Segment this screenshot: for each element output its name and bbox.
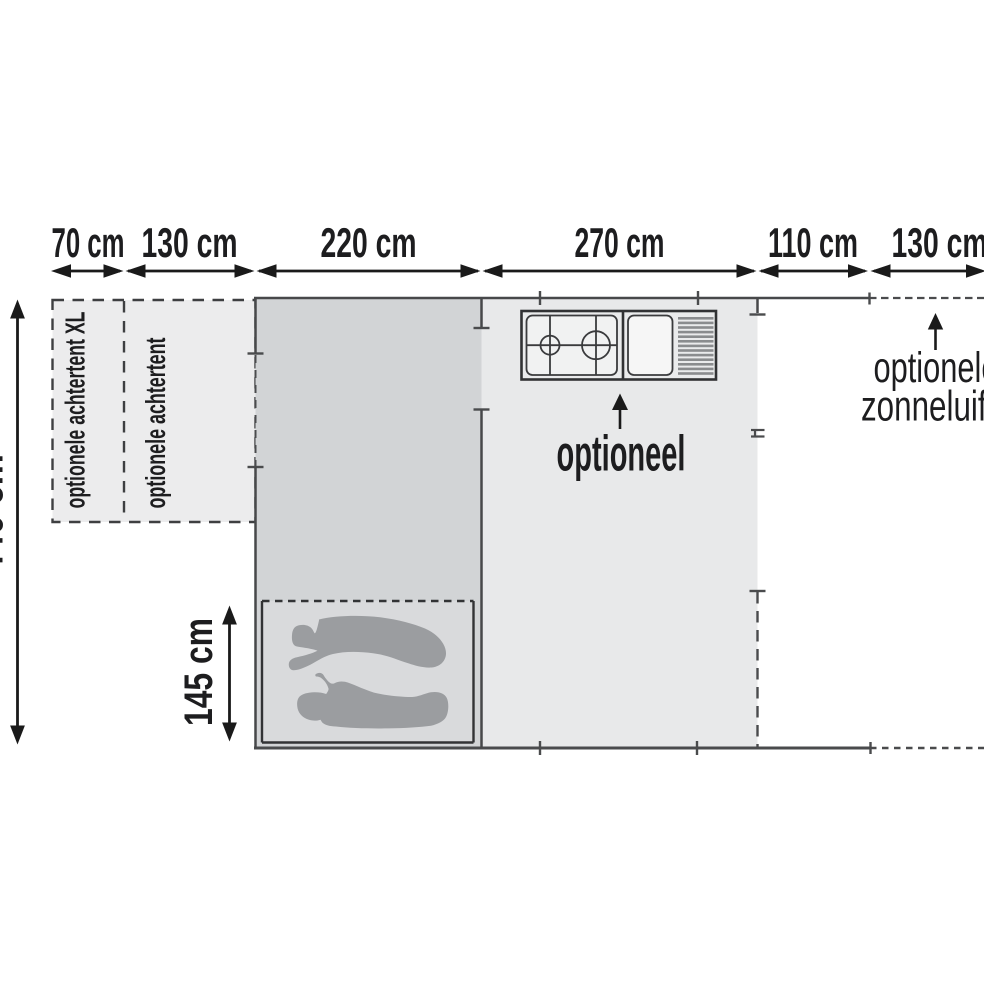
- svg-text:130 cm: 130 cm: [892, 219, 984, 266]
- svg-text:220 cm: 220 cm: [321, 219, 417, 266]
- svg-text:130 cm: 130 cm: [142, 219, 238, 266]
- svg-text:270 cm: 270 cm: [575, 219, 665, 266]
- svg-text:70 cm: 70 cm: [52, 219, 125, 266]
- svg-text:zonneluifel: zonneluifel: [861, 383, 984, 431]
- svg-text:440 cm: 440 cm: [0, 454, 12, 574]
- svg-text:optionele achtertent: optionele achtertent: [140, 338, 171, 509]
- svg-text:optioneel: optioneel: [557, 426, 686, 482]
- svg-text:110 cm: 110 cm: [768, 219, 858, 266]
- svg-text:optionele achtertent XL: optionele achtertent XL: [60, 312, 91, 509]
- svg-text:145 cm: 145 cm: [177, 618, 221, 726]
